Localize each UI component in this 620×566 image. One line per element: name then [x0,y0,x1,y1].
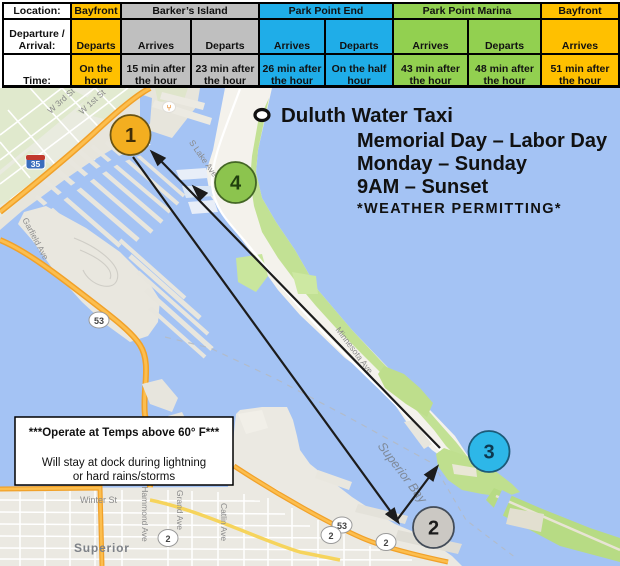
svg-text:Superior: Superior [74,541,130,555]
svg-text:2: 2 [383,538,388,548]
svg-text:4: 4 [230,173,242,195]
svg-text:Memorial Day – Labor Day: Memorial Day – Labor Day [357,130,608,152]
svg-text:35: 35 [31,159,41,169]
svg-text:Grand Ave: Grand Ave [175,490,185,530]
svg-text:9AM – Sunset: 9AM – Sunset [357,176,488,198]
svg-text:*WEATHER PERMITTING*: *WEATHER PERMITTING* [357,201,562,217]
svg-text:3: 3 [483,442,494,464]
svg-text:53: 53 [94,316,104,326]
svg-text:2: 2 [428,518,439,540]
svg-text:Monday – Sunday: Monday – Sunday [357,153,528,175]
svg-text:Will stay at dock during light: Will stay at dock during lightning [42,457,206,469]
svg-text:Duluth Water Taxi: Duluth Water Taxi [281,104,453,127]
svg-text:Catlin Ave: Catlin Ave [219,503,229,541]
svg-text:1: 1 [125,125,136,147]
svg-text:Hammond Ave: Hammond Ave [140,486,150,542]
svg-text:Winter St: Winter St [80,495,118,505]
svg-text:***Operate at Temps above 60°: ***Operate at Temps above 60° F*** [29,427,220,439]
svg-text:⑂: ⑂ [167,104,172,113]
svg-text:or hard rains/storms: or hard rains/storms [73,471,176,483]
svg-text:2: 2 [328,531,333,541]
svg-text:2: 2 [165,534,170,544]
